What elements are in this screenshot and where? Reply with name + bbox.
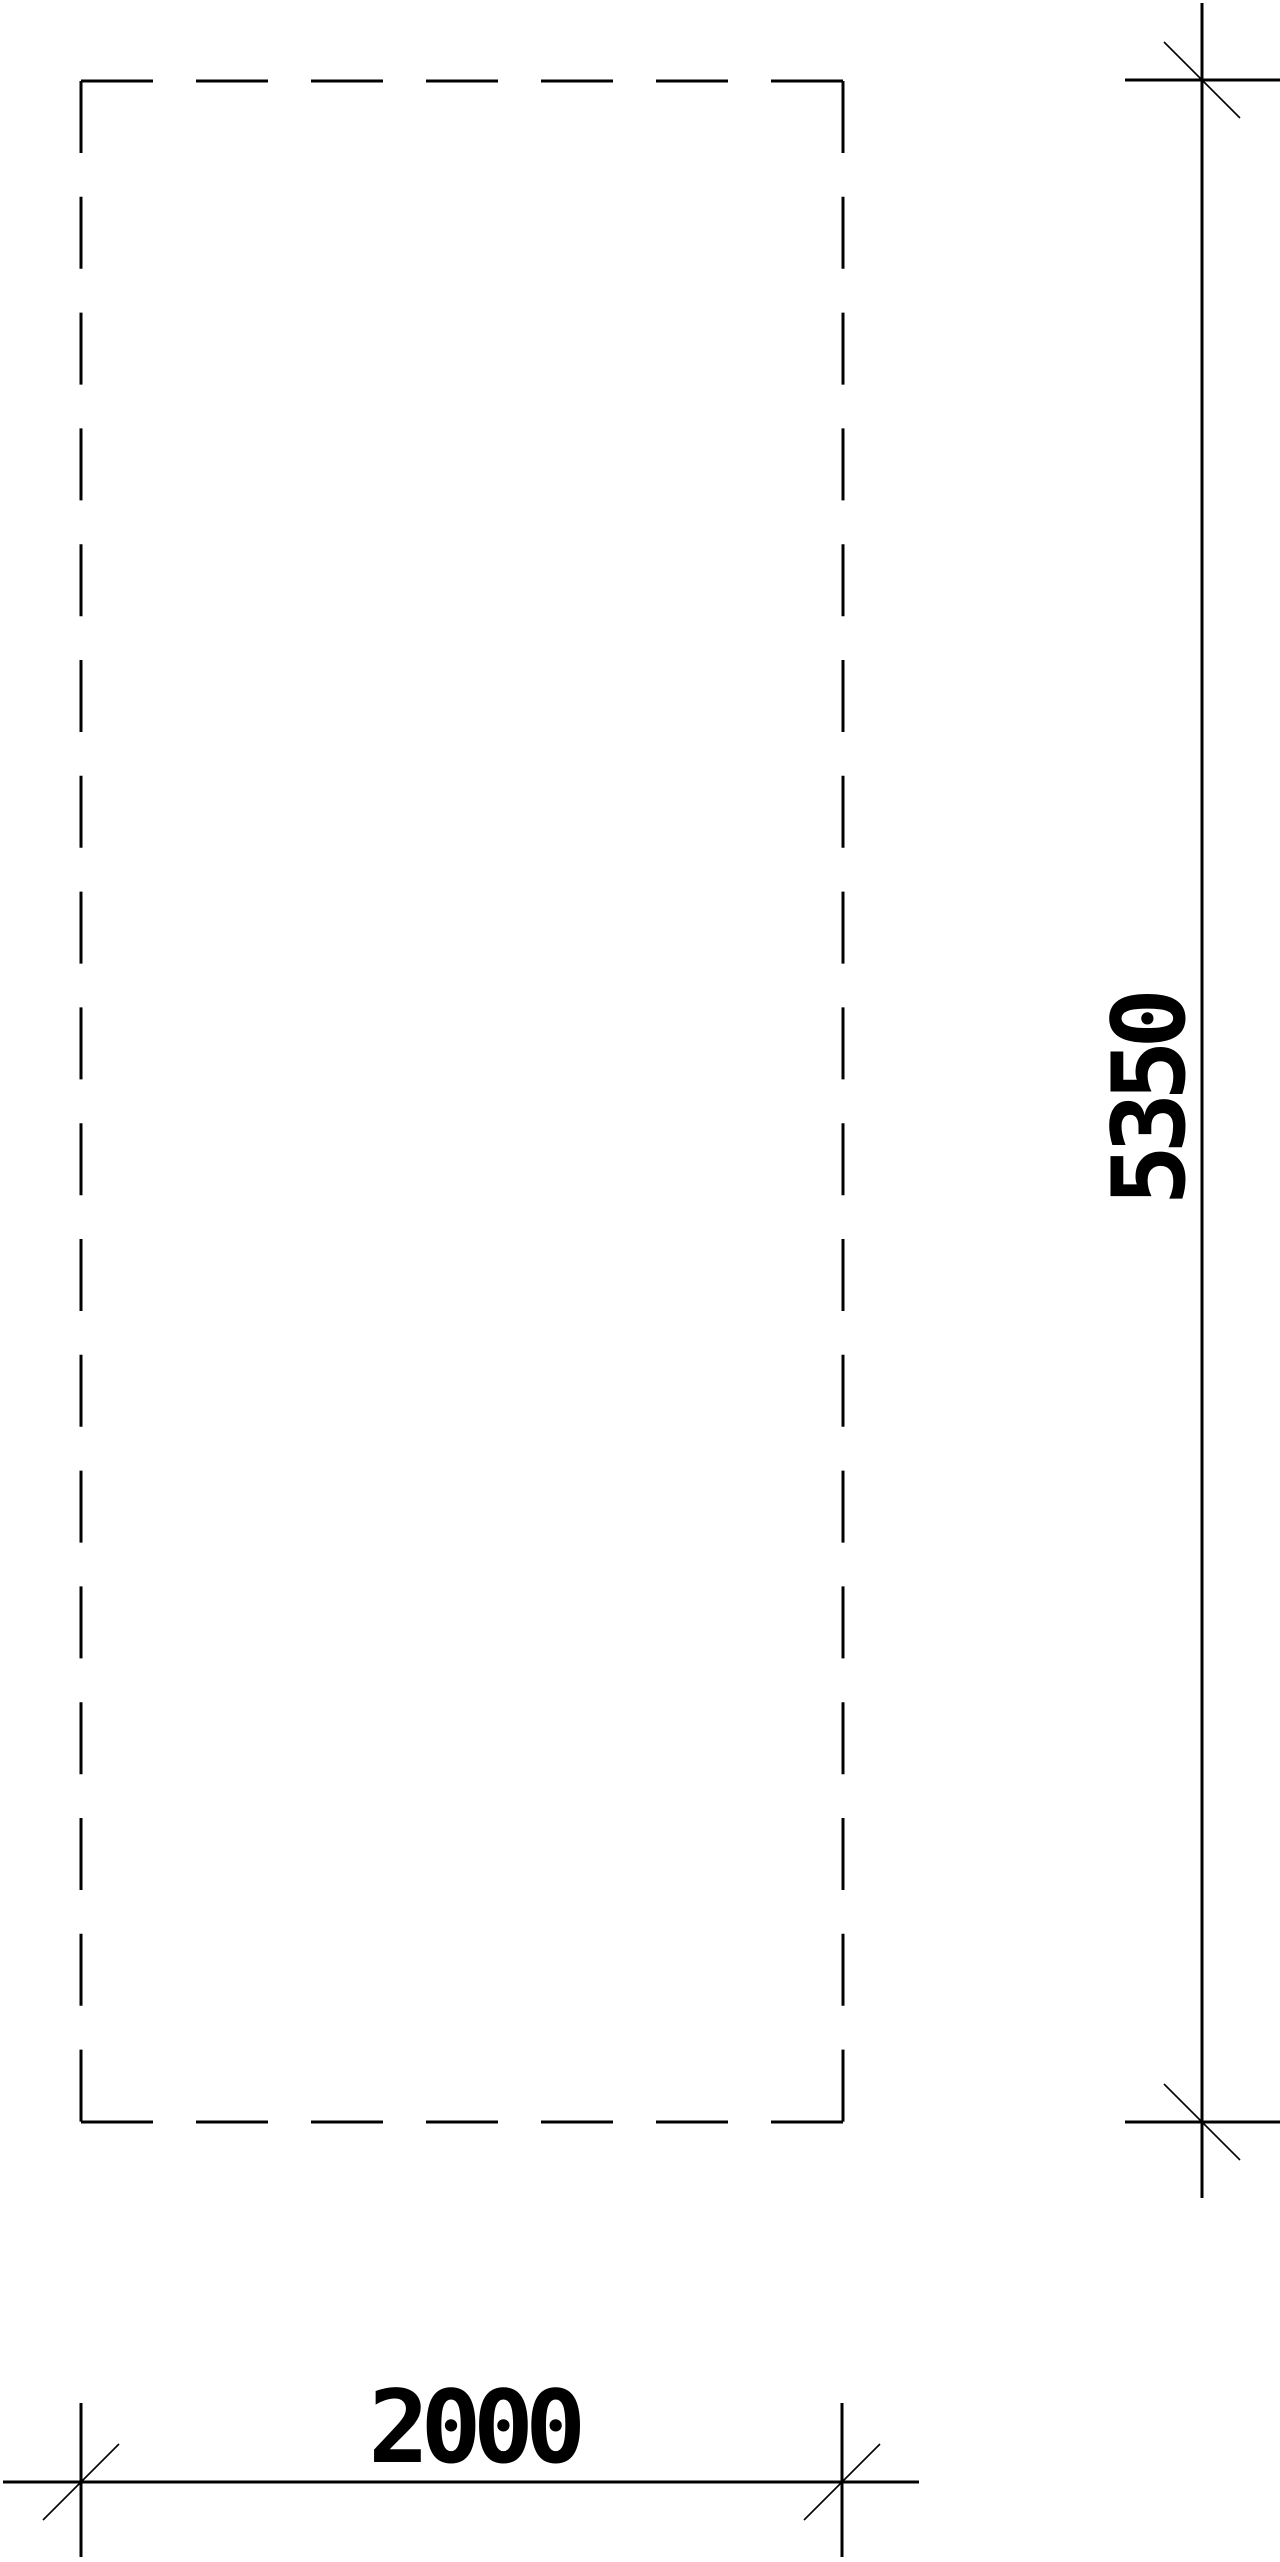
vertical-dimension: 5350 [1090, 3, 1280, 2198]
horizontal-dimension-label: 2000 [368, 2368, 580, 2486]
vertical-dimension-label: 5350 [1090, 994, 1208, 1206]
dashed-rectangle [81, 81, 843, 2122]
horizontal-dimension: 2000 [3, 2368, 919, 2557]
cad-drawing-canvas: 5350 2000 [0, 0, 1280, 2562]
technical-drawing: 5350 2000 [0, 0, 1280, 2562]
